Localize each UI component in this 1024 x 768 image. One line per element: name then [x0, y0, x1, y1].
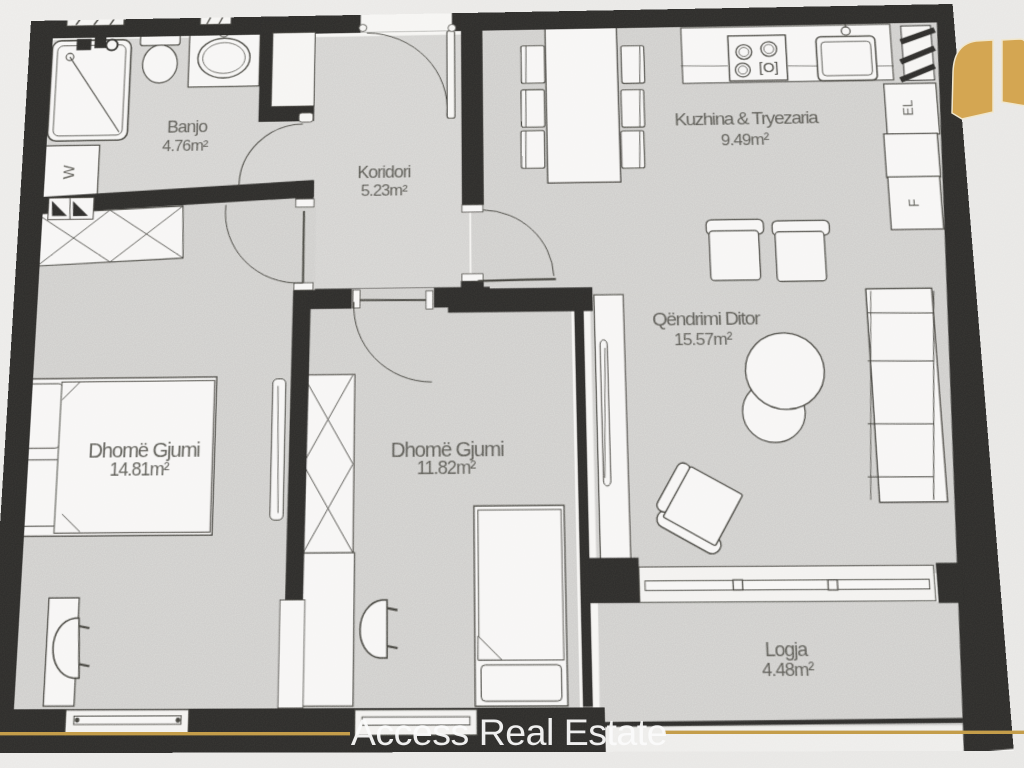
svg-text:Kuzhina & Tryezaria: Kuzhina & Tryezaria: [674, 107, 820, 130]
svg-text:Qëndrimi Ditor: Qëndrimi Ditor: [652, 308, 761, 331]
svg-text:Logja: Logja: [764, 639, 809, 662]
svg-text:Koridori: Koridori: [357, 162, 411, 182]
svg-text:11.82m²: 11.82m²: [417, 458, 477, 479]
svg-text:Banjo: Banjo: [167, 117, 208, 137]
svg-text:[O]: [O]: [758, 60, 779, 75]
svg-text:Dhomë Gjumi: Dhomë Gjumi: [88, 438, 200, 462]
svg-text:4.48m²: 4.48m²: [762, 661, 815, 681]
svg-text:4.76m²: 4.76m²: [162, 137, 209, 155]
svg-text:14.81m²: 14.81m²: [109, 460, 171, 480]
svg-text:W: W: [61, 165, 79, 179]
svg-text:9.49m²: 9.49m²: [721, 131, 770, 149]
svg-text:15.57m²: 15.57m²: [674, 330, 733, 349]
svg-text:5.23m²: 5.23m²: [361, 182, 408, 200]
svg-text:F: F: [905, 199, 922, 208]
svg-text:EL: EL: [899, 100, 917, 116]
